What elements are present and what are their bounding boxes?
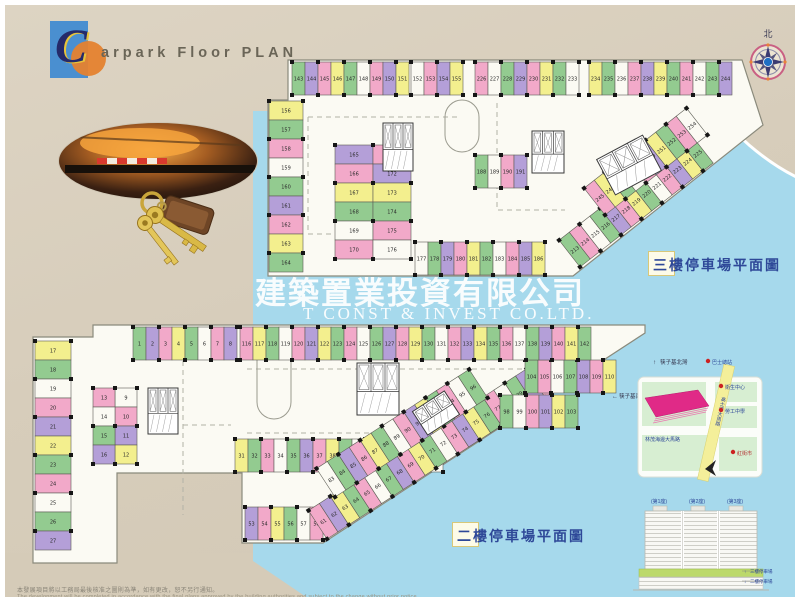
poi-school: 勞工中學 <box>725 408 745 415</box>
compass-icon: 北 <box>749 29 786 81</box>
map-road-north: 筷子基北灣 <box>660 358 688 366</box>
pointer-up-icon: ↑ <box>744 569 746 574</box>
poi-dot <box>706 359 710 363</box>
third-floor-caption: 三樓停車場平面圖 <box>653 255 781 275</box>
striped-barrier <box>97 158 167 164</box>
page-title: arpark Floor PLAN <box>101 45 297 61</box>
poi-bus-terminal: 巴士總站 <box>712 359 732 366</box>
keys-photo <box>134 193 215 268</box>
poi-dot <box>731 450 735 454</box>
west-arrow-icon: ← <box>612 394 618 400</box>
tower-label: (第1座) <box>651 498 667 505</box>
poi-health-centre: 衛生中心 <box>725 384 745 391</box>
poi-dot <box>719 408 723 412</box>
pointer-down-icon: ↓ <box>744 579 746 584</box>
pointer-second-floor: 二樓停車場 <box>750 578 773 585</box>
brochure-page: 建築置業投資有限公司 T CONST & INVEST CO.LTD. 1431… <box>0 0 800 602</box>
disclaimer-chinese: 本發展項目將以工務局最後核准之圖則為準，如有更改，恕不另行通知。 <box>17 585 219 594</box>
elevation-diagram: (第1座) (第2座) (第3座) ↑ 三樓停車場 ↓ 二樓停車場 <box>633 498 773 590</box>
second-floor-caption: 二樓停車場平面圖 <box>457 526 585 546</box>
tower-block <box>645 511 757 569</box>
tower-label: (第3座) <box>727 498 743 505</box>
location-map: ↑ 筷子基北灣 ← 筷子基南灣 高士德大馬路 巴士總站 衛生中心 勞工中學 <box>612 358 762 482</box>
poi-red-market: 紅街市 <box>737 450 752 457</box>
logo-initial: C <box>55 19 87 74</box>
compass-north-label: 北 <box>763 29 772 39</box>
map-road-bottom-label: 林茂海邊大馬路 <box>645 436 680 443</box>
overlay-graphics: 北 ↑ 筷子基北灣 ← 筷子基南灣 <box>5 5 800 602</box>
disclaimer-english: The development will be completed in acc… <box>17 594 418 600</box>
pointer-third-floor: 三樓停車場 <box>750 568 773 575</box>
poi-dot <box>719 384 723 388</box>
north-arrow-icon: ↑ <box>653 360 656 366</box>
carpark-photo <box>58 122 258 200</box>
tower-label: (第2座) <box>689 498 705 505</box>
